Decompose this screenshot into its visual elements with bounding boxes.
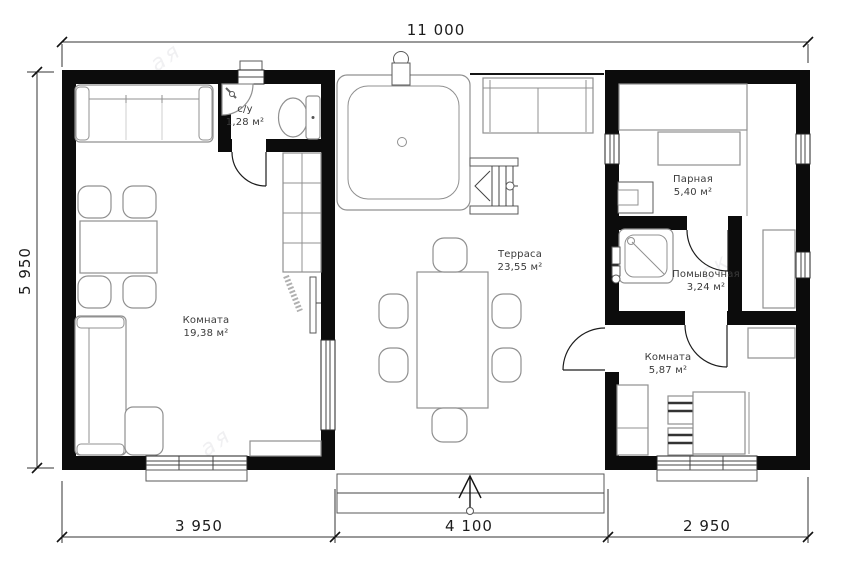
room-name: Комната <box>146 315 266 328</box>
window <box>146 456 247 481</box>
window <box>321 340 335 430</box>
chair <box>379 348 408 382</box>
small-room-furniture <box>617 328 795 455</box>
room-label-bathroom: с/у 1,28 м² <box>185 104 305 129</box>
room-name: Терраса <box>460 249 580 262</box>
room-area: 5,87 м² <box>608 365 728 378</box>
table <box>80 221 157 273</box>
room-label-terrace: Терраса 23,55 м² <box>460 249 580 274</box>
window <box>605 134 619 164</box>
chair <box>379 294 408 328</box>
window <box>657 456 757 481</box>
room-name: Помывочная <box>646 269 766 282</box>
dimension-bottom-right: 2 950 <box>647 518 767 535</box>
dining-set <box>78 186 157 308</box>
room-area: 1,28 м² <box>185 117 305 130</box>
terrace-elements <box>337 52 604 515</box>
dimension-bottom-left: 3 950 <box>139 518 259 535</box>
chair <box>78 186 111 218</box>
window <box>796 134 810 164</box>
washroom-bench <box>763 230 795 308</box>
wall-tv <box>286 276 321 333</box>
dining-table <box>417 272 488 408</box>
window <box>238 61 264 84</box>
room-label-washroom: Помывочная 3,24 м² <box>646 269 766 294</box>
chair-slatted <box>668 428 693 455</box>
door-bathroom <box>232 152 266 186</box>
sauna-bench <box>658 132 740 165</box>
entry-steps <box>337 474 604 515</box>
shelf <box>748 328 795 358</box>
room-area: 5,40 м² <box>633 187 753 200</box>
wardrobe <box>283 153 321 272</box>
terrace-sofa <box>483 78 593 133</box>
room-name: Комната <box>608 352 728 365</box>
chair <box>123 186 156 218</box>
stair-direction-icon <box>475 171 490 201</box>
chair <box>492 348 521 382</box>
room-label-sauna: Парная 5,40 м² <box>633 174 753 199</box>
room-area: 23,55 м² <box>460 262 580 275</box>
door-sauna <box>687 230 728 271</box>
room-name: с/у <box>185 104 305 117</box>
chair <box>78 276 111 308</box>
dimension-top-width: 11 000 <box>376 22 496 39</box>
stairs <box>470 158 518 214</box>
dimension-left-depth: 5 950 <box>17 211 35 331</box>
room-area: 3,24 м² <box>646 282 766 295</box>
chair <box>432 408 467 442</box>
chair-slatted <box>668 396 693 424</box>
bed <box>693 392 745 454</box>
room-label-small-room: Комната 5,87 м² <box>608 352 728 377</box>
door-terrace-entry <box>563 328 605 370</box>
hot-tub <box>337 52 470 211</box>
sauna-bench-upper <box>619 84 747 130</box>
room-area: 19,38 м² <box>146 328 266 341</box>
dimension-bottom-center: 4 100 <box>409 518 529 535</box>
chair <box>492 294 521 328</box>
chair <box>123 276 156 308</box>
cabinet <box>617 385 648 455</box>
window <box>796 252 810 278</box>
tv-cabinet <box>250 441 321 456</box>
room-label-living: Комната 19,38 м² <box>146 315 266 340</box>
floor-plan: ая я в ск ая <box>0 0 843 568</box>
room-name: Парная <box>633 174 753 187</box>
